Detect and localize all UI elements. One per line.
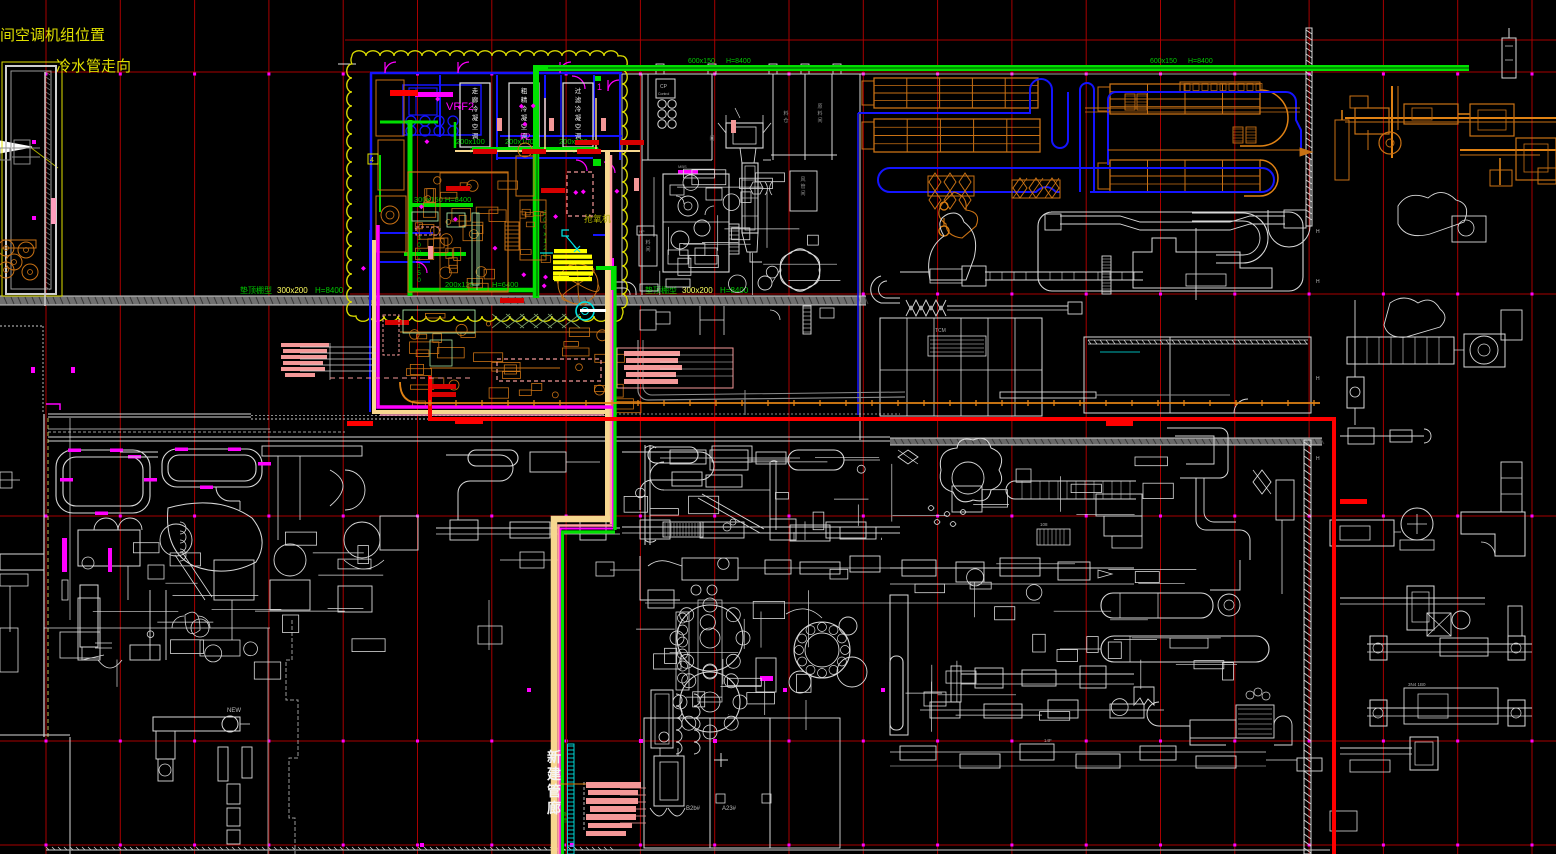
svg-text:H=8400: H=8400 [315,286,344,295]
svg-text:H=8400: H=8400 [720,286,749,295]
svg-text:1: 1 [417,263,421,270]
svg-text:H=6400: H=6400 [492,280,518,289]
svg-text:CP: CP [660,84,668,90]
svg-text:风: 风 [800,177,805,183]
svg-text:3N4 1B0: 3N4 1B0 [1408,682,1426,687]
svg-text:空: 空 [472,122,479,131]
svg-text:管: 管 [562,817,567,824]
svg-text:空: 空 [575,122,582,131]
svg-text:300x150 H=8400: 300x150 H=8400 [414,195,471,204]
svg-text:2: 2 [543,210,547,217]
svg-text:料: 料 [645,239,650,246]
svg-text:过: 过 [575,86,582,95]
svg-text:NEW: NEW [227,708,241,714]
svg-text:凝: 凝 [521,113,528,122]
svg-text:走: 走 [472,87,479,95]
svg-text:TCM: TCM [935,328,946,334]
svg-text:垫顶棚型: 垫顶棚型 [240,285,272,295]
svg-text:间: 间 [709,135,714,142]
svg-text:新: 新 [562,811,567,818]
svg-text:凝: 凝 [472,113,479,122]
svg-text:新: 新 [547,749,561,765]
svg-text:MBS: MBS [678,164,687,169]
svg-text:1: 1 [597,82,602,92]
svg-text:垫顶棚型: 垫顶棚型 [645,285,677,295]
svg-text:600x150: 600x150 [688,58,715,65]
svg-text:原: 原 [817,104,822,110]
svg-text:H=8400: H=8400 [726,58,751,65]
svg-text:仓: 仓 [783,117,788,124]
svg-text:Control: Control [658,92,670,96]
svg-text:凝: 凝 [575,113,582,122]
svg-text:108: 108 [1040,522,1048,527]
svg-text:HP: HP [639,229,645,234]
svg-text:H=8400: H=8400 [1188,58,1213,65]
svg-text:2: 2 [543,245,547,252]
svg-text:0: 0 [543,224,547,231]
svg-text:廊: 廊 [547,800,561,816]
svg-text:间: 间 [645,246,650,253]
svg-text:600x150: 600x150 [1150,58,1177,65]
svg-text:建: 建 [547,766,561,782]
svg-text:0: 0 [417,249,421,256]
svg-text:0: 0 [417,277,421,284]
svg-text:精: 精 [521,95,528,104]
svg-text:VRF2: VRF2 [446,101,474,113]
svg-text:A23#: A23# [722,806,737,812]
svg-text:4: 4 [370,157,374,164]
svg-text:H: H [1316,229,1320,235]
svg-text:H: H [1316,456,1320,462]
svg-text:F2: F2 [520,132,531,142]
svg-text:冷: 冷 [575,104,582,113]
svg-text:料: 料 [783,110,788,117]
svg-text:滤: 滤 [575,95,582,104]
svg-text:管: 管 [800,183,805,190]
svg-text:B2b#: B2b# [686,806,701,812]
svg-text:H: H [1316,376,1320,382]
svg-text:300x200: 300x200 [277,286,308,295]
svg-text:冷水管走向: 冷水管走向 [56,58,131,75]
svg-text:200x100: 200x100 [456,137,485,146]
svg-text:管: 管 [547,783,561,799]
svg-text:间空调机组位置: 间空调机组位置 [0,27,105,44]
svg-text:料: 料 [817,110,822,117]
svg-text:0: 0 [543,217,547,224]
svg-text:间: 间 [817,117,822,124]
svg-text:间: 间 [800,190,805,197]
svg-text:14F: 14F [1044,738,1052,743]
svg-text:1: 1 [543,238,547,245]
svg-text:粗: 粗 [521,86,528,95]
svg-text:H: H [1316,279,1320,285]
svg-text:抢氧机: 抢氧机 [584,213,611,224]
svg-text:5: 5 [417,270,421,277]
